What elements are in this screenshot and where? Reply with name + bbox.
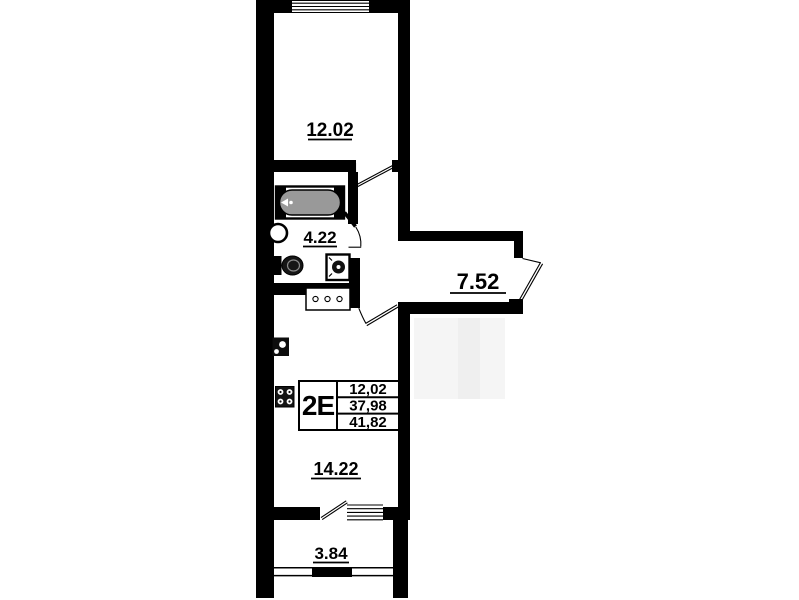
wall-balcony-divider-right [383,507,408,520]
washbasin-icon [269,224,287,242]
bathtub-icon [276,187,344,219]
wall-left [256,0,274,598]
washing-machine-icon [327,255,350,281]
toilet-icon [274,256,303,275]
wall-corridor-right-upper-stub [514,231,523,258]
door-leaf [367,307,398,326]
kitchen-fixtures [273,338,295,408]
bathroom-area-label: 4.22 [303,228,336,247]
unit-stat-total-area: 41,82 [349,414,387,431]
bedroom-area-label: 12.02 [306,120,354,141]
door-leaf [519,263,541,301]
door-swing-arc [523,259,541,263]
counter-knob [313,296,318,301]
hallway-area-label: 7.52 [457,269,500,294]
washbasin-bowl [269,224,287,242]
washing-machine-drum-center [337,265,341,269]
balcony-area-label: 3.84 [314,544,348,563]
counter-icon [306,288,350,310]
door-leaf [322,503,347,520]
kitchen-sink-bowl [279,341,286,348]
bathtub-drain [289,201,293,205]
door-leaf [357,167,395,187]
stove-burner-center [279,391,281,393]
wall-bedroom-bottom [274,160,356,172]
wall-corridor-top [398,231,523,241]
door-leaf [321,501,346,518]
unit-info-table: 2E 12,02 37,98 41,82 [299,381,399,431]
balcony-divider-window-icon [347,504,383,520]
counter-knob [325,296,330,301]
kitchen-living-area-label: 14.22 [313,459,358,479]
walls [256,0,523,598]
wall-right-upper [398,0,410,241]
stove-burner-center [288,391,290,393]
kitchen-door-icon [359,305,398,326]
watermark-ghost [414,318,505,399]
door-swing-arc [356,227,361,247]
unit-type-label: 2E [302,390,335,421]
stove-body [276,387,295,408]
door-swing-arc [359,308,366,323]
floor-plan-canvas: 2E 12,02 37,98 41,82 12.02 4.22 7.52 14.… [0,0,799,600]
floor-plan: 2E 12,02 37,98 41,82 12.02 4.22 7.52 14.… [0,0,799,600]
bathtub-basin [280,190,341,215]
stove-icon [276,387,295,408]
bedroom-door-icon [356,163,395,187]
wall-right-balcony [393,507,408,598]
wall-bedroom-bottom-stub [392,160,398,172]
entrance-door-icon [519,259,543,302]
bedroom-window-icon [292,1,369,12]
watermark-ghost-rect [458,318,480,399]
kitchen-sink-icon [273,338,290,357]
wall-balcony-divider-left [274,507,320,520]
unit-stat-area: 37,98 [349,398,387,415]
door-leaf [356,165,394,185]
balcony-window-mid-block [312,567,352,577]
toilet-tank [274,256,282,275]
kitchen-sink-mark [274,349,279,354]
door-leaf [521,264,542,302]
balcony-door-icon [321,501,347,520]
stove-burner-center [288,400,290,402]
balcony-window-icon [269,567,393,577]
counter-knob [337,296,342,301]
wall-corridor-bottom [398,302,523,314]
stove-burner-center [279,400,281,402]
door-leaf [366,305,398,324]
unit-stat-living-area: 12,02 [349,381,387,398]
